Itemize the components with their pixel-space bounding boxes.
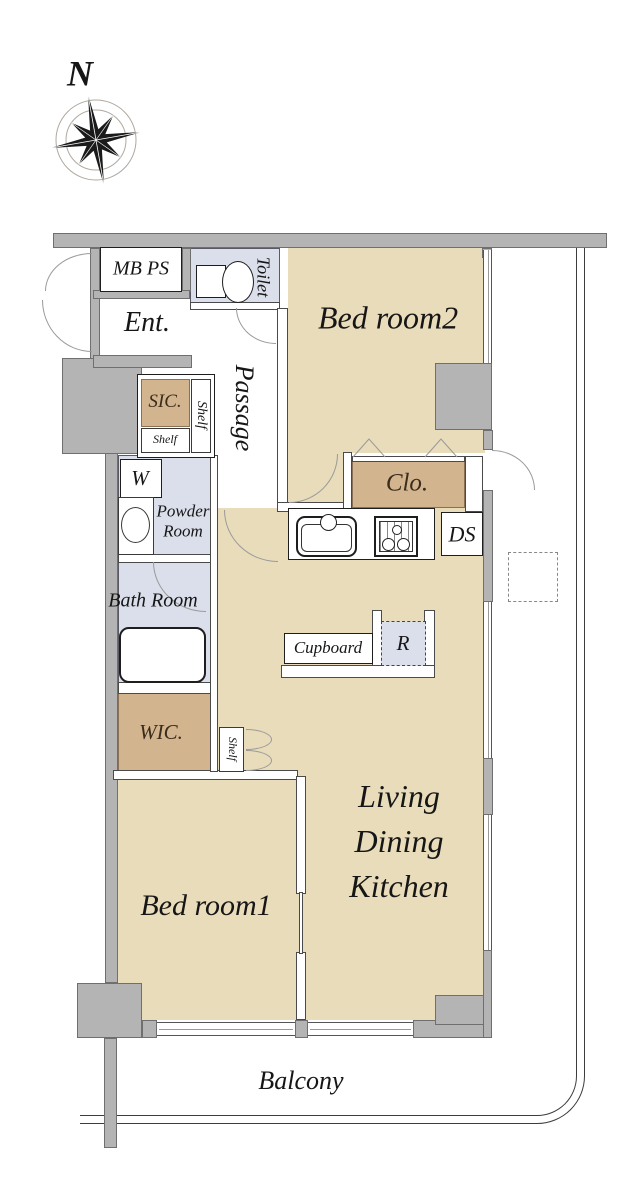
outdoor-unit-space (508, 552, 558, 602)
label-bedroom-shelf: Shelf (225, 737, 239, 761)
closet-fold-caret-1 (352, 438, 386, 458)
label-duct-space: DS (449, 521, 476, 546)
wall-bath-wic (118, 682, 211, 694)
wall-bedroom1-ldk-lower (296, 952, 306, 1020)
wall-below-entrance (93, 355, 192, 368)
wall-bedroom2-notch (435, 363, 492, 430)
toilet-bowl-icon (222, 261, 254, 303)
wall-left-mid (105, 453, 118, 983)
room-label-toilet: Toilet (253, 257, 274, 297)
kitchen-sink-icon (296, 516, 357, 557)
room-label-mbps: MB PS (113, 258, 169, 281)
wall-right-seg3 (483, 758, 493, 815)
closet-fold-caret-2 (424, 438, 458, 458)
wall-balcony-stub (104, 1038, 117, 1148)
entry-column (62, 358, 142, 454)
wall-right-seg4 (483, 950, 492, 1038)
room-label-ldk: Living Dining Kitchen (324, 774, 474, 908)
wall-right-seg2 (483, 490, 493, 602)
column-bottom-left (77, 983, 142, 1038)
wall-bedroom1-ldk-upper (296, 776, 306, 894)
room-label-bedroom1: Bed room1 (140, 889, 271, 924)
label-refrigerator: R (397, 631, 410, 655)
partition-base (281, 665, 435, 678)
wall-mbps-toilet (182, 248, 191, 292)
wall-right-seg1 (483, 430, 493, 450)
compass-rose (48, 92, 144, 188)
room-label-balcony: Balcony (258, 1066, 343, 1096)
faucet-icon (320, 514, 337, 531)
label-sic-shelf-side: Shelf (193, 401, 209, 429)
bathtub-icon (119, 627, 206, 683)
room-label-bedroom2: Bed room2 (318, 300, 458, 337)
stove-burner-left (382, 538, 395, 551)
window-bedroom2 (483, 250, 492, 363)
entrance-door-arc-2 (42, 300, 92, 352)
window-ldk-lower (483, 815, 492, 950)
wall-closet-right (465, 456, 483, 512)
wall-bottom-mid (295, 1020, 308, 1038)
stove-burner-right (397, 538, 410, 551)
window-ldk-bottom (308, 1022, 413, 1036)
wall-nook-right (343, 452, 352, 512)
label-sic-shelf-bottom: Shelf (153, 433, 177, 447)
room-label-sic: SIC. (148, 391, 181, 413)
wall-passage-right (277, 308, 288, 510)
window-bedroom1 (157, 1022, 295, 1036)
stove-icon (374, 516, 418, 557)
label-washer: W (131, 466, 149, 490)
floor-plan: N MB PS Ent. Toilet Bed room2 SIC. Shelf… (0, 0, 628, 1200)
wall-bedroom1-top (113, 770, 298, 780)
wall-top (53, 233, 607, 248)
wall-bottom-left (142, 1020, 157, 1038)
compass-north-label: N (67, 53, 93, 94)
stove-knob (392, 525, 402, 535)
room-label-powder: Powder Room (143, 501, 223, 540)
room-label-passage: Passage (229, 365, 259, 452)
room-label-bath: Bath Room (108, 590, 198, 613)
room-label-closet: Clo. (386, 470, 428, 499)
entrance-door-arc-1 (45, 253, 92, 291)
room-label-entrance: Ent. (124, 307, 170, 339)
label-cupboard: Cupboard (294, 638, 362, 658)
room-label-wic: WIC. (139, 720, 183, 744)
sliding-door-leaf (299, 892, 303, 954)
window-ldk-upper (483, 602, 492, 758)
